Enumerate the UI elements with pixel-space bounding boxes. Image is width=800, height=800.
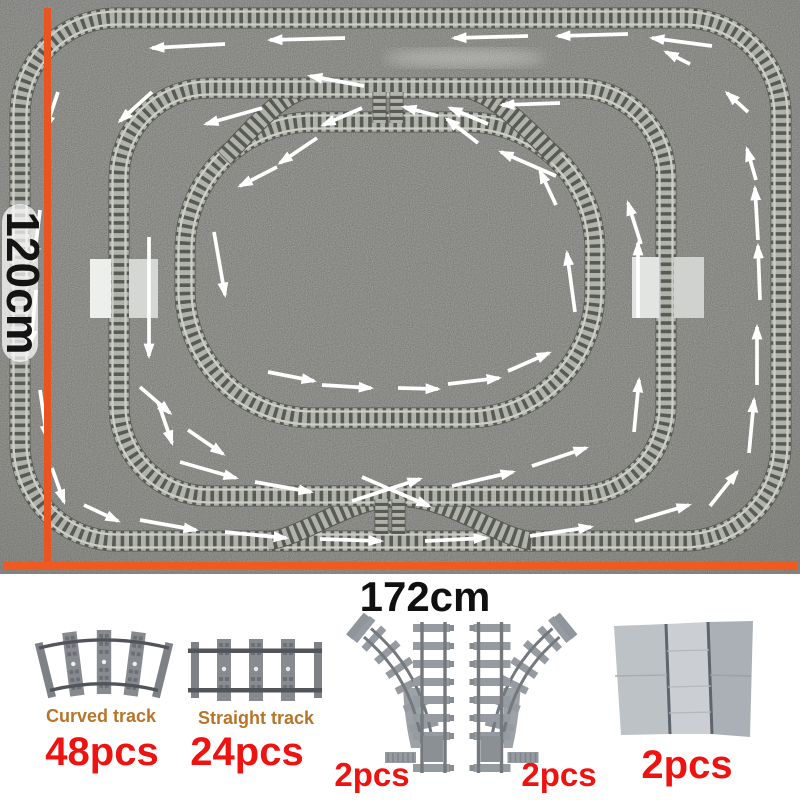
svg-text:48pcs: 48pcs: [45, 730, 158, 774]
svg-text:Straight track: Straight track: [198, 708, 315, 728]
svg-text:2pcs: 2pcs: [641, 743, 732, 787]
svg-text:2pcs: 2pcs: [521, 756, 596, 793]
svg-text:120cm: 120cm: [0, 211, 49, 354]
svg-text:172cm: 172cm: [360, 573, 491, 620]
svg-text:Curved track: Curved track: [46, 706, 157, 726]
svg-text:24pcs: 24pcs: [190, 730, 303, 774]
svg-text:2pcs: 2pcs: [334, 756, 409, 793]
